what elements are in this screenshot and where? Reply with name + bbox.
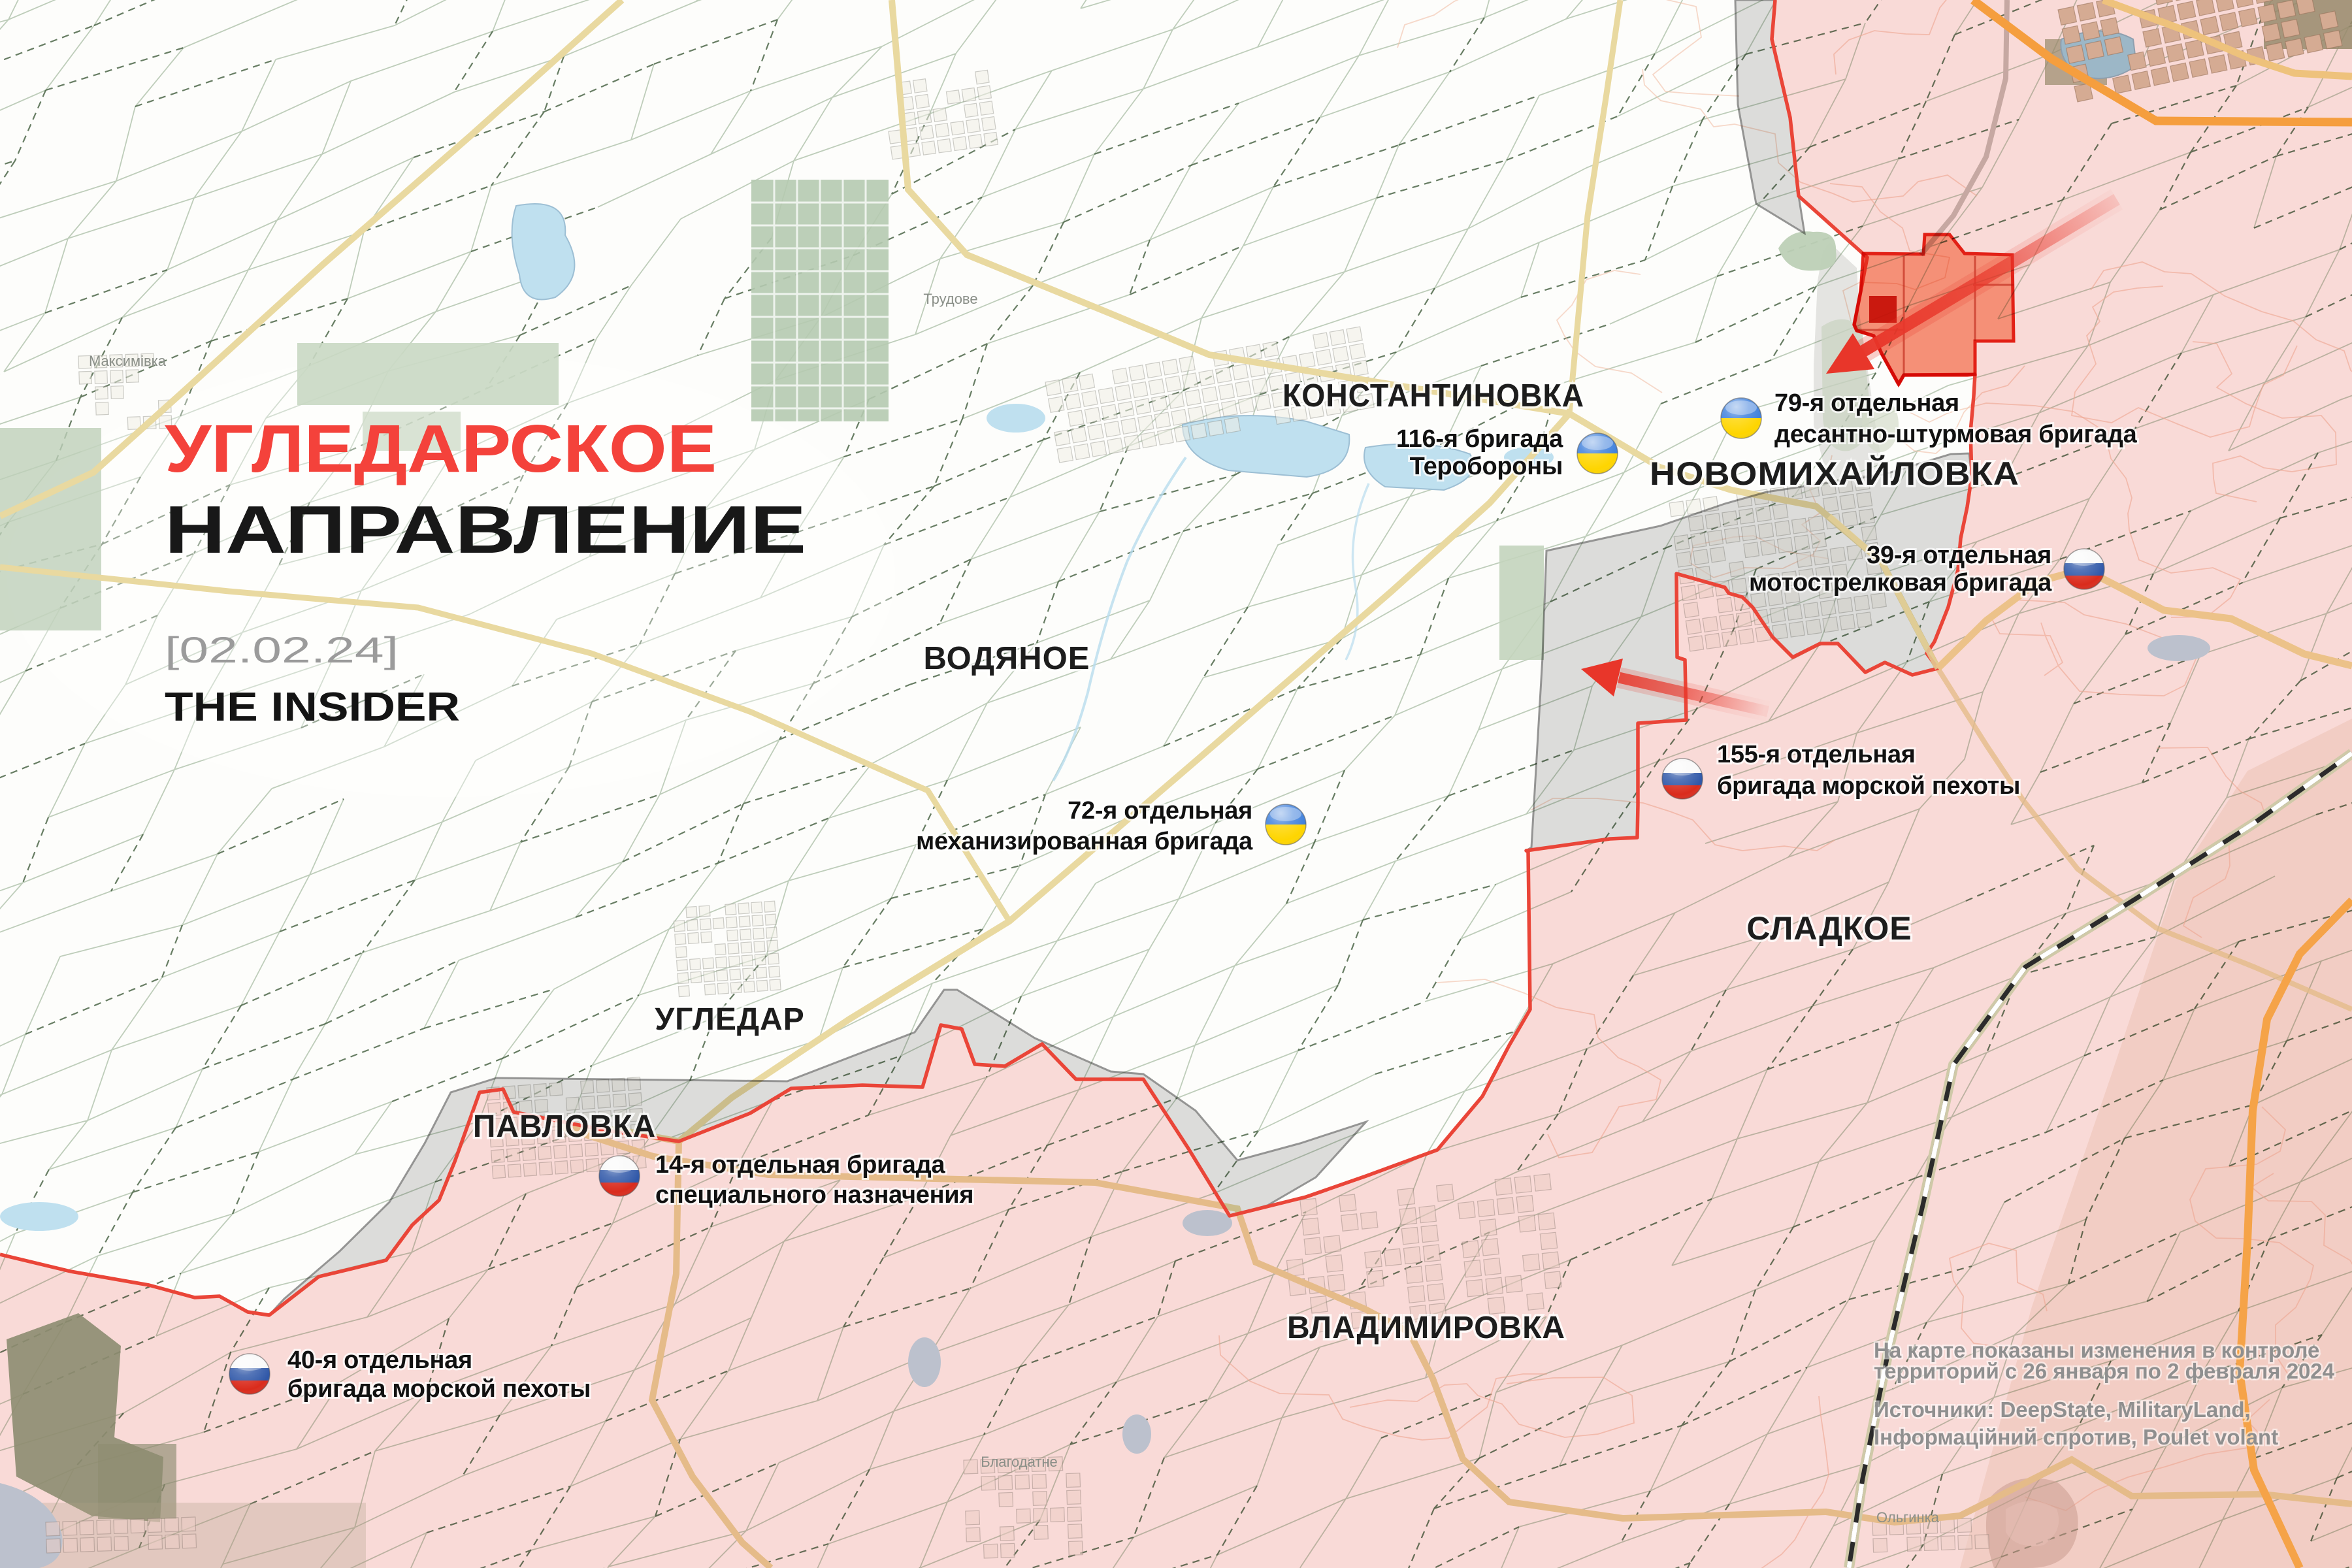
svg-text:Ольгинка: Ольгинка [1876,1509,1940,1526]
svg-text:Трудове: Трудове [923,291,977,307]
svg-text:механизированная бригада: механизированная бригада [916,828,1253,855]
svg-text:УГЛЕДАРСКОЕ: УГЛЕДАРСКОЕ [165,411,717,486]
svg-text:бригада морской пехоты: бригада морской пехоты [1717,772,2020,800]
svg-text:Інформаційний спротив, Poulet: Інформаційний спротив, Poulet volant [1874,1425,2278,1449]
svg-text:79-я отдельная: 79-я отдельная [1774,389,1959,417]
svg-text:116-я бригада: 116-я бригада [1396,425,1563,453]
svg-text:УГЛЕДАР: УГЛЕДАР [655,1002,804,1037]
svg-text:НОВОМИХАЙЛОВКА: НОВОМИХАЙЛОВКА [1650,455,2019,492]
svg-text:THE INSIDER: THE INSIDER [165,685,460,730]
svg-text:Теробороны: Теробороны [1410,453,1563,480]
svg-text:14-я отдельная бригада: 14-я отдельная бригада [655,1151,945,1179]
svg-text:Максимівка: Максимівка [89,353,167,369]
svg-text:ВОДЯНОЕ: ВОДЯНОЕ [924,641,1090,676]
svg-text:десантно-штурмовая бригада: десантно-штурмовая бригада [1774,421,2138,448]
svg-text:специального назначения: специального назначения [655,1181,973,1209]
svg-text:155-я отдельная: 155-я отдельная [1717,741,1916,768]
svg-text:Источники: DeepState, Military: Источники: DeepState, MilitaryLand, [1874,1397,2251,1422]
svg-text:КОНСТАНТИНОВКА: КОНСТАНТИНОВКА [1282,378,1584,414]
svg-text:Благодатне: Благодатне [981,1454,1058,1470]
svg-text:39-я отдельная: 39-я отдельная [1867,542,2051,569]
svg-text:40-я отдельная: 40-я отдельная [287,1347,472,1374]
svg-text:СЛАДКОЕ: СЛАДКОЕ [1746,910,1912,947]
svg-text:[02.02.24]: [02.02.24] [165,629,399,670]
svg-text:территорий с 26 января по 2 фе: территорий с 26 января по 2 февраля 2024 [1874,1359,2335,1383]
svg-text:НАПРАВЛЕНИЕ: НАПРАВЛЕНИЕ [165,492,806,567]
svg-text:ВЛАДИМИРОВКА: ВЛАДИМИРОВКА [1287,1311,1565,1345]
svg-text:72-я отдельная: 72-я отдельная [1068,797,1252,825]
svg-text:бригада морской пехоты: бригада морской пехоты [287,1375,591,1403]
svg-text:ПАВЛОВКА: ПАВЛОВКА [473,1109,656,1144]
svg-text:мотострелковая бригада: мотострелковая бригада [1749,569,2052,596]
